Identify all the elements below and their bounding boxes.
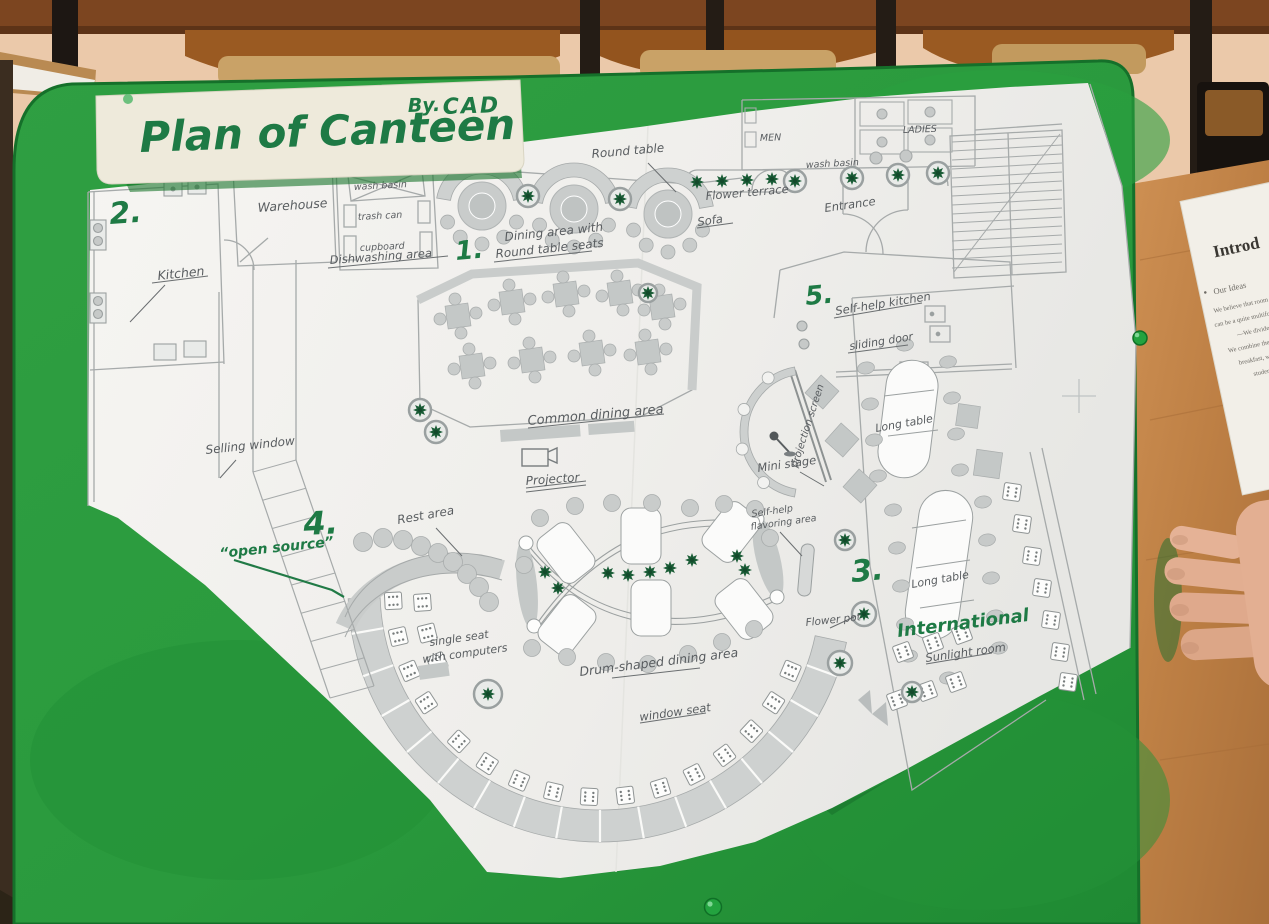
computer-seat [1002, 482, 1021, 501]
plant-center [838, 661, 842, 665]
title-banner: Plan of Canteen By. CAD [96, 80, 524, 192]
chair-seat [624, 349, 636, 361]
chair-seat [589, 364, 601, 376]
pushpin-highlight [1135, 333, 1140, 338]
chair-seat [509, 215, 523, 229]
chair-seat [470, 307, 482, 319]
chair-seat [644, 495, 661, 512]
wave-table [621, 508, 661, 564]
chair-seat [374, 529, 393, 548]
chair-seat [604, 495, 621, 512]
label-area1-number: 1. [454, 235, 484, 267]
knuckle-shading [1167, 568, 1185, 580]
chair-seat [596, 290, 608, 302]
computer-seat [580, 788, 598, 806]
plant-center [896, 173, 900, 177]
plant-center [850, 176, 854, 180]
chair-seat [639, 329, 651, 341]
chair-seat [523, 337, 535, 349]
seat-box [1022, 546, 1041, 565]
chair-seat [508, 357, 520, 369]
chair-seat [394, 531, 413, 550]
pushpin [1133, 331, 1147, 345]
table-square [553, 281, 579, 307]
plant-center [648, 570, 652, 574]
chair-seat [516, 557, 533, 574]
plant-center [770, 177, 774, 181]
plant-center [668, 566, 672, 570]
label-area3-number: 3. [850, 552, 885, 590]
folded-chair-seat-wood [1205, 90, 1263, 136]
chair-seat [529, 371, 541, 383]
chair-seat [762, 530, 779, 547]
chair-seat [617, 304, 629, 316]
seat-box [616, 786, 635, 805]
pushpin [705, 899, 722, 916]
table-square [956, 404, 981, 429]
chair-seat [746, 621, 763, 638]
chair-seat [660, 343, 672, 355]
seat-box [1032, 578, 1051, 597]
wave-anchor [519, 536, 533, 550]
wave-anchor [770, 590, 784, 604]
label-area5-number: 5. [804, 280, 834, 312]
chair-seat [659, 318, 671, 330]
plant-center [618, 197, 622, 201]
seat-box [1002, 482, 1021, 501]
stage-scallop [736, 443, 748, 455]
chair-seat [524, 640, 541, 657]
computer-seat [1058, 672, 1077, 691]
chair-seat [674, 298, 686, 310]
label-area2-number: 2. [108, 195, 143, 232]
banner-byline-name: CAD [442, 93, 500, 120]
chair-top-rail-wood [0, 0, 1269, 26]
chair-seat [638, 304, 650, 316]
computer-seat [1022, 546, 1041, 565]
label-trash-can: trash can [358, 210, 403, 223]
plant-center [434, 430, 438, 434]
plant-center [843, 538, 847, 542]
table-square [607, 280, 633, 306]
plant-center [556, 586, 560, 590]
chair-seat [488, 299, 500, 311]
left-shadow-strip [0, 60, 13, 924]
seat-box [388, 626, 408, 646]
chair-seat [683, 238, 697, 252]
plant-center [910, 690, 914, 694]
plant-center [646, 291, 650, 295]
knuckle-shading [1181, 642, 1199, 654]
table-square [519, 347, 545, 373]
computer-seat [1041, 610, 1060, 629]
computer-seat [384, 592, 402, 610]
plant-center [486, 692, 490, 696]
chair-seat [661, 245, 675, 259]
round-table-center [655, 201, 681, 227]
table-square [499, 289, 525, 315]
computer-seat [616, 786, 635, 805]
chair-seat [559, 649, 576, 666]
computer-seat [413, 593, 431, 611]
knuckle-shading [1171, 604, 1189, 616]
plant-center [690, 558, 694, 562]
chair-seat [557, 271, 569, 283]
plant-center [626, 573, 630, 577]
plant-center [720, 179, 724, 183]
chair-seat [469, 377, 481, 389]
wave-table [631, 580, 671, 636]
seat-box [580, 788, 598, 806]
knuckle-shading [1172, 535, 1188, 545]
plant-center [418, 408, 422, 412]
chair-seat [716, 496, 733, 513]
computer-seat [1012, 514, 1031, 533]
chair-seat [455, 327, 467, 339]
chair-seat [544, 351, 556, 363]
seat-box [1041, 610, 1060, 629]
plant-center [745, 178, 749, 182]
banner-byline-by: By. [407, 94, 440, 117]
chair-seat [542, 291, 554, 303]
chair-seat [484, 357, 496, 369]
scene: Round table Warehouse wash basin trash c… [0, 0, 1269, 924]
pushpin-highlight [707, 901, 712, 906]
seat-box [1058, 672, 1077, 691]
seat-box [543, 782, 563, 802]
chair-seat [448, 363, 460, 375]
photo-of-canteen-plan-poster: Round table Warehouse wash basin trash c… [0, 0, 1269, 924]
table-square [445, 303, 471, 329]
chair-seat [639, 238, 653, 252]
plant-center [793, 179, 797, 183]
chair-seat [412, 537, 431, 556]
table-square [973, 449, 1002, 478]
chair-seat [532, 510, 549, 527]
round-table-center [561, 196, 587, 222]
chair-seat [645, 363, 657, 375]
plant-center [862, 612, 866, 616]
stage-scallop [758, 477, 770, 489]
chair-seat [463, 343, 475, 355]
chair-seat [449, 293, 461, 305]
banner-pin [123, 94, 133, 104]
plant-center [543, 570, 547, 574]
chair-seat [354, 533, 373, 552]
plant-center [735, 554, 739, 558]
label-ladies: LADIES [903, 124, 937, 136]
chair-seat [568, 350, 580, 362]
plant-center [695, 180, 699, 184]
chair-seat [627, 223, 641, 237]
chair-seat [441, 215, 455, 229]
chair-seat [682, 500, 699, 517]
chair-seat [601, 218, 615, 232]
stage-scallop [738, 403, 750, 415]
plant-center [743, 568, 747, 572]
table-square [459, 353, 485, 379]
label-men: MEN [760, 132, 782, 144]
chair-seat [604, 344, 616, 356]
computer-seat [543, 782, 563, 802]
chair-seat [434, 313, 446, 325]
computer-seat [1050, 642, 1069, 661]
chair-seat [503, 279, 515, 291]
chair-seat [563, 305, 575, 317]
plant-center [526, 194, 530, 198]
chair-seat [567, 498, 584, 515]
seat-box [384, 592, 402, 610]
computer-seat [388, 626, 408, 646]
plant-center [936, 171, 940, 175]
chair-seat [524, 293, 536, 305]
computer-seat [1032, 578, 1051, 597]
seat-box [413, 593, 431, 611]
chair-seat [578, 285, 590, 297]
seat-box [1050, 642, 1069, 661]
round-table-center [469, 193, 495, 219]
chair-seat [480, 593, 499, 612]
plant-center [606, 571, 610, 575]
chair-seat [509, 313, 521, 325]
table-square [635, 339, 661, 365]
table-square [579, 340, 605, 366]
chair-seat [611, 270, 623, 282]
stage-scallop [762, 372, 774, 384]
seat-box [1012, 514, 1031, 533]
chair-seat [583, 330, 595, 342]
